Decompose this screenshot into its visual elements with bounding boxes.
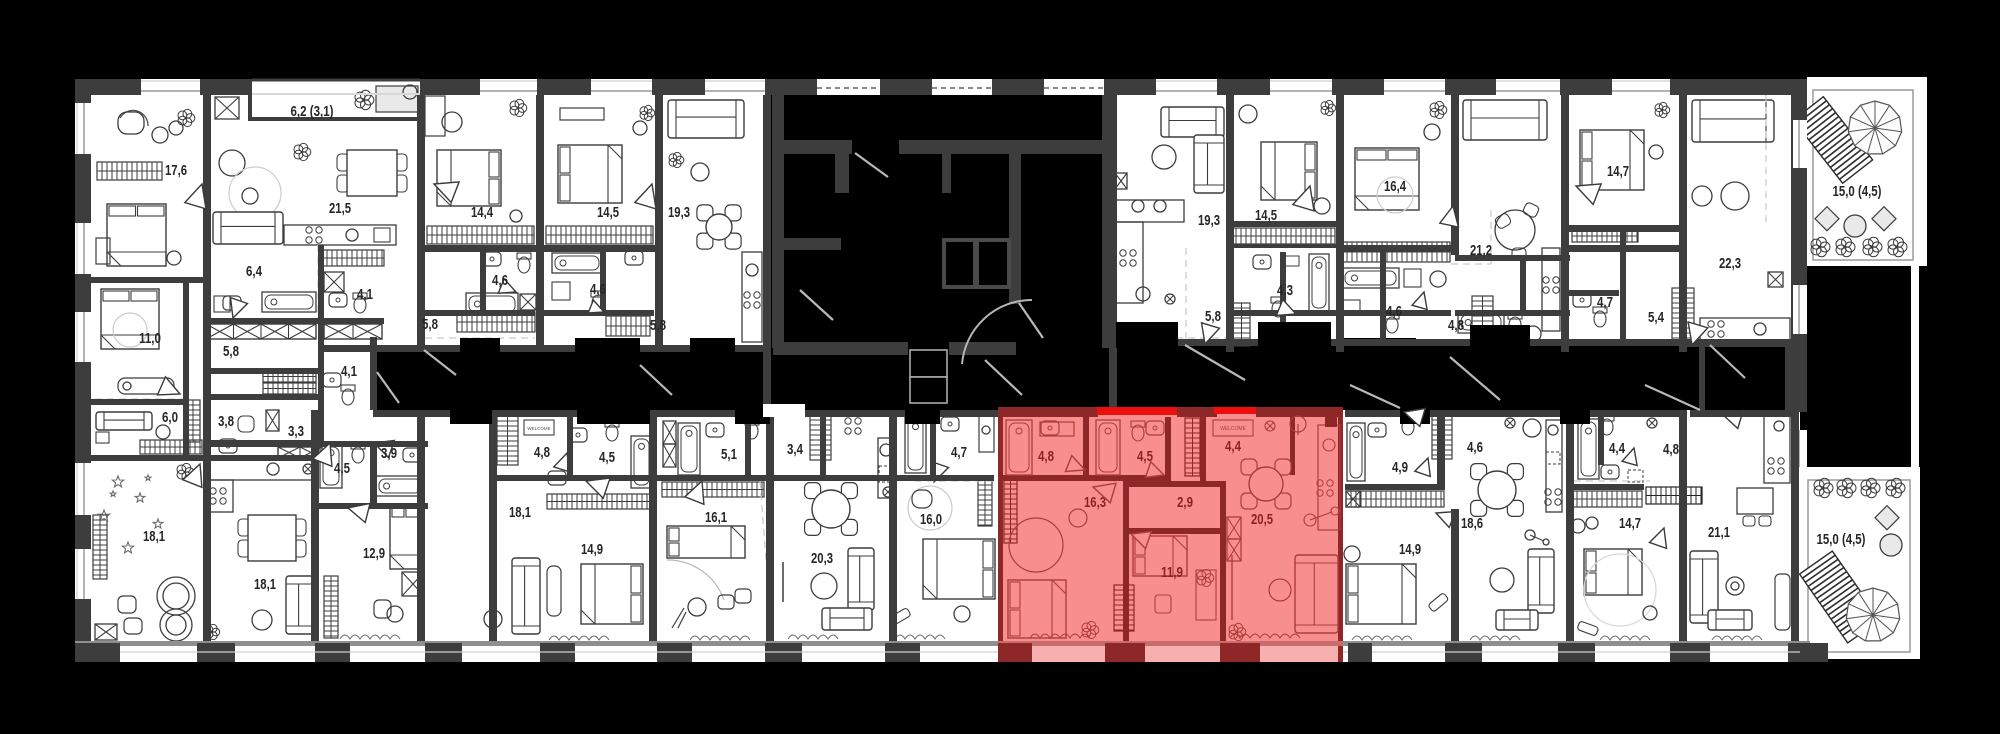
svg-text:19,3: 19,3 (668, 204, 690, 221)
svg-text:6,0: 6,0 (162, 409, 178, 426)
svg-text:14,9: 14,9 (581, 541, 603, 558)
svg-text:4,9: 4,9 (1392, 459, 1408, 476)
svg-text:14,5: 14,5 (597, 204, 619, 221)
svg-text:15,0 (4,5): 15,0 (4,5) (1817, 531, 1866, 548)
svg-text:4,6: 4,6 (1386, 303, 1402, 320)
svg-text:21,2: 21,2 (1470, 242, 1492, 259)
svg-text:18,1: 18,1 (143, 528, 165, 545)
svg-text:4,8: 4,8 (1038, 448, 1054, 465)
svg-text:11,0: 11,0 (139, 330, 161, 347)
svg-text:4,1: 4,1 (341, 363, 357, 380)
svg-text:5,4: 5,4 (1648, 309, 1664, 326)
svg-text:14,5: 14,5 (1255, 207, 1277, 224)
svg-text:16,0: 16,0 (920, 511, 942, 528)
svg-text:4,6: 4,6 (590, 281, 606, 298)
svg-text:21,5: 21,5 (329, 200, 351, 217)
svg-text:14,9: 14,9 (1399, 541, 1421, 558)
svg-text:4,8: 4,8 (1448, 317, 1464, 334)
svg-text:4,4: 4,4 (1225, 438, 1241, 455)
svg-text:14,7: 14,7 (1619, 515, 1641, 532)
svg-text:4,5: 4,5 (599, 449, 615, 466)
svg-text:4,4: 4,4 (1609, 440, 1625, 457)
svg-text:20,5: 20,5 (1251, 511, 1273, 528)
svg-text:5,8: 5,8 (650, 317, 666, 334)
svg-text:5,1: 5,1 (721, 446, 737, 463)
svg-text:18,1: 18,1 (254, 576, 276, 593)
svg-text:6,2 (3,1): 6,2 (3,1) (291, 103, 334, 120)
svg-text:4,8: 4,8 (534, 444, 550, 461)
svg-text:14,7: 14,7 (1607, 163, 1629, 180)
svg-text:16,4: 16,4 (1384, 178, 1406, 195)
svg-text:5,8: 5,8 (1205, 308, 1221, 325)
svg-text:4,6: 4,6 (1467, 439, 1483, 456)
svg-text:12,9: 12,9 (363, 545, 385, 562)
svg-text:4,8: 4,8 (1663, 441, 1679, 458)
svg-text:3,9: 3,9 (381, 445, 397, 462)
svg-text:WELCOME: WELCOME (527, 426, 550, 431)
svg-text:4,1: 4,1 (357, 286, 373, 303)
svg-text:2,9: 2,9 (1177, 494, 1193, 511)
svg-text:4,6: 4,6 (492, 272, 508, 289)
svg-text:20,3: 20,3 (811, 550, 833, 567)
svg-text:16,1: 16,1 (705, 509, 727, 526)
svg-text:3,8: 3,8 (218, 413, 234, 430)
svg-text:18,6: 18,6 (1461, 515, 1483, 532)
svg-text:14,4: 14,4 (471, 204, 493, 221)
svg-text:17,6: 17,6 (165, 162, 187, 179)
svg-text:4,7: 4,7 (1597, 294, 1613, 311)
svg-text:11,9: 11,9 (1161, 564, 1183, 581)
svg-text:21,1: 21,1 (1708, 524, 1730, 541)
svg-text:3,3: 3,3 (288, 423, 304, 440)
svg-text:5,8: 5,8 (422, 316, 438, 333)
svg-text:WELCOME: WELCOME (1220, 426, 1247, 432)
svg-text:3,4: 3,4 (787, 441, 803, 458)
svg-text:18,1: 18,1 (509, 504, 531, 521)
svg-text:5,8: 5,8 (223, 343, 239, 360)
svg-text:22,3: 22,3 (1719, 255, 1741, 272)
svg-text:4,5: 4,5 (334, 460, 350, 477)
svg-text:6,4: 6,4 (246, 263, 262, 280)
svg-text:4,7: 4,7 (951, 444, 967, 461)
svg-text:19,3: 19,3 (1198, 212, 1220, 229)
svg-text:15,0 (4,5): 15,0 (4,5) (1833, 183, 1882, 200)
svg-text:4,3: 4,3 (1277, 282, 1293, 299)
